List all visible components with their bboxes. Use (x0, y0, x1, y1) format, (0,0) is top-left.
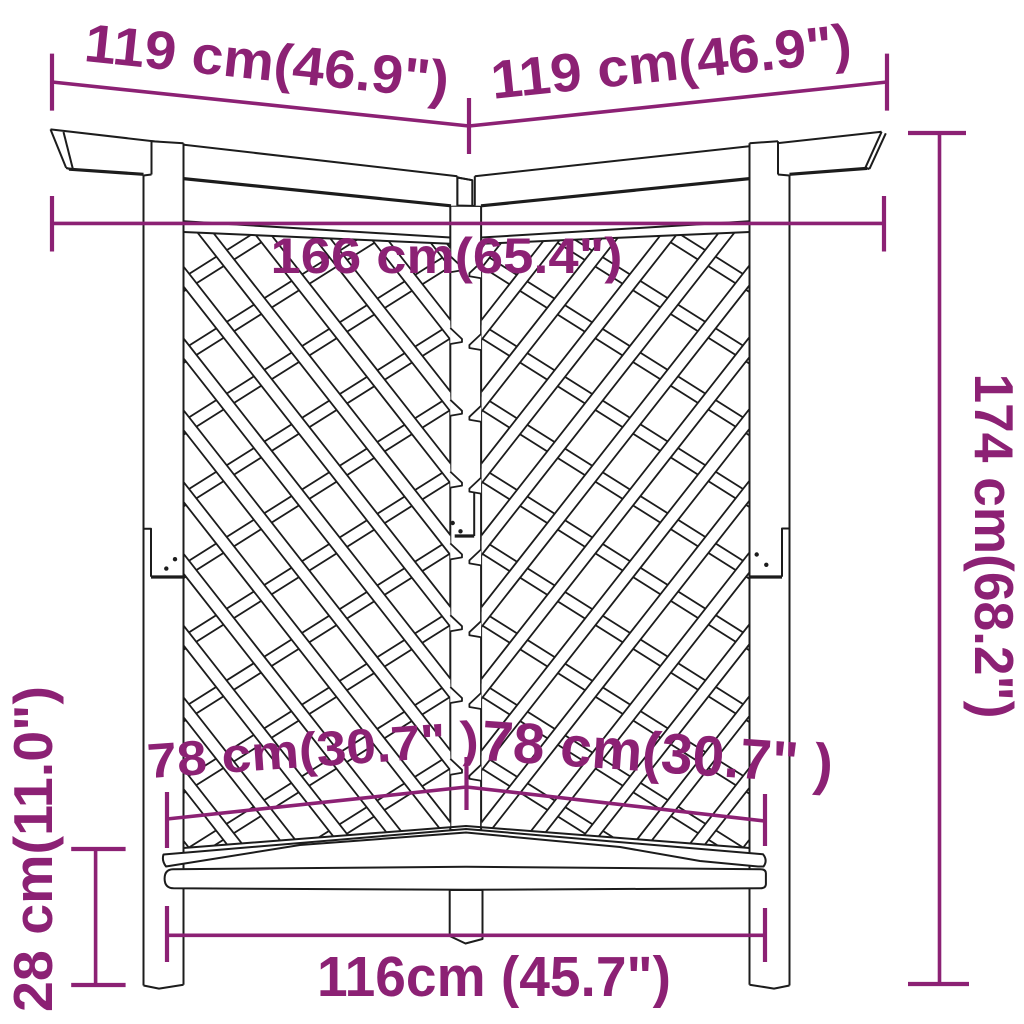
svg-text:166 cm(65.4"): 166 cm(65.4") (271, 228, 623, 284)
svg-text:116cm (45.7"): 116cm (45.7") (317, 945, 671, 1009)
svg-text:28 cm(11.0"): 28 cm(11.0") (2, 686, 64, 1012)
svg-text:174 cm(68.2"): 174 cm(68.2") (963, 374, 1024, 719)
